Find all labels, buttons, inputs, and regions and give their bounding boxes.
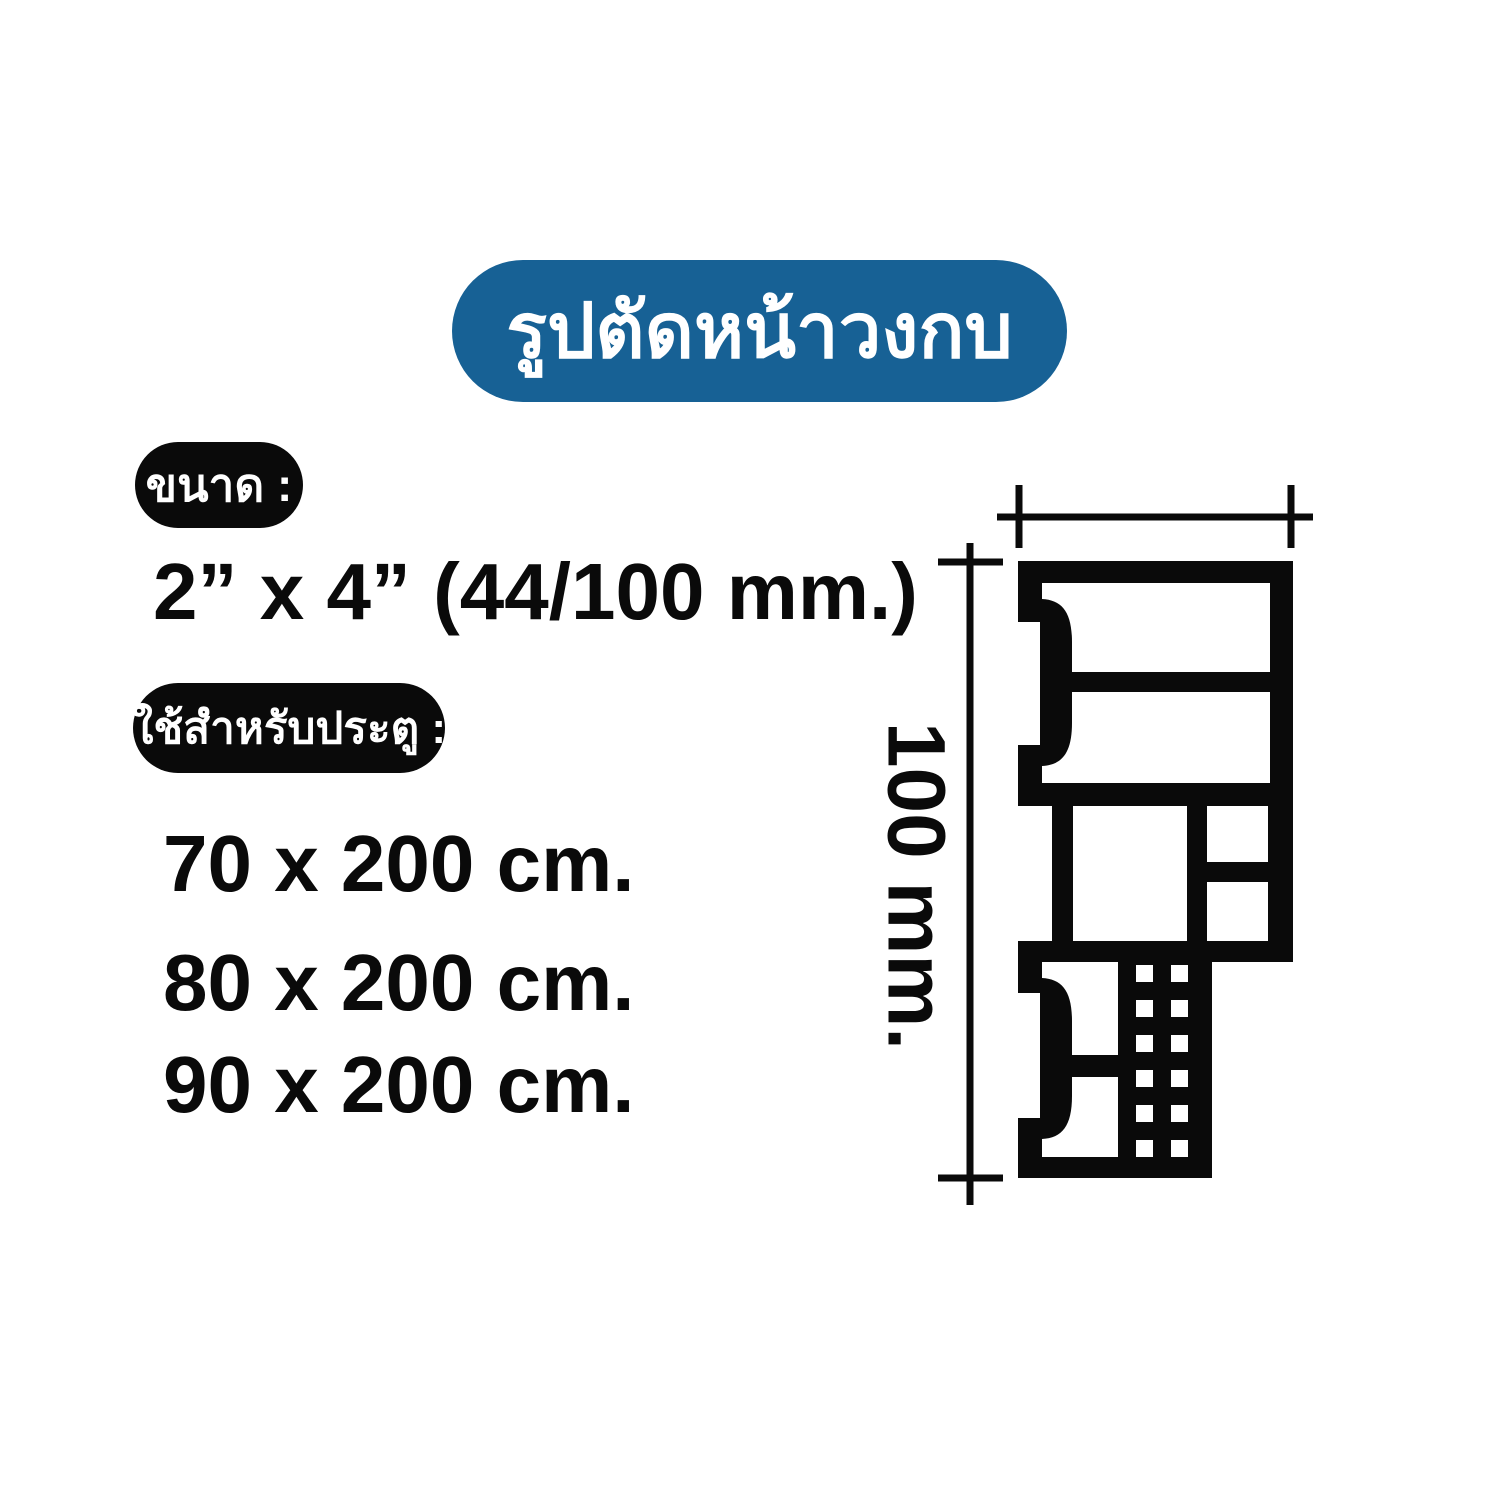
size-value: 2” x 4” (44/100 mm.) (153, 552, 918, 632)
hatch-square (1136, 1035, 1153, 1052)
infographic-canvas: รูปตัดหน้าวงกบ ขนาด : 2” x 4” (44/100 mm… (0, 0, 1500, 1500)
usage-label: ใช้สำหรับประตู : (132, 693, 446, 763)
door-size-item: 70 x 200 cm. (163, 824, 634, 904)
door-size-item: 90 x 200 cm. (163, 1045, 634, 1125)
door-size-item: 80 x 200 cm. (163, 943, 634, 1023)
profile-cavity-right-upper (1207, 806, 1268, 862)
hatch-square (1136, 1000, 1153, 1017)
size-label: ขนาด : (146, 449, 293, 522)
hatch-square (1136, 965, 1153, 982)
frame-cross-section-diagram: 100 mm. (860, 460, 1360, 1220)
hatch-square (1136, 1105, 1153, 1122)
profile-cavity-second (1042, 692, 1270, 783)
hatch-square (1171, 1035, 1188, 1052)
profile-cavity-middle-large (1073, 806, 1187, 941)
height-dimension-label: 100 mm. (871, 722, 962, 1050)
hatch-square (1171, 965, 1188, 982)
hatch-square (1171, 1070, 1188, 1087)
profile-cavity-top (1042, 583, 1270, 672)
hatch-square (1136, 1140, 1153, 1157)
profile-cavity-right-lower (1207, 882, 1268, 941)
size-label-badge: ขนาด : (135, 442, 303, 528)
hatch-square (1171, 1000, 1188, 1017)
hatch-square (1171, 1105, 1188, 1122)
usage-label-badge: ใช้สำหรับประตู : (133, 683, 445, 773)
hatch-square (1171, 1140, 1188, 1157)
title-banner: รูปตัดหน้าวงกบ (452, 260, 1067, 402)
hatch-square (1136, 1070, 1153, 1087)
page-title: รูปตัดหน้าวงกบ (506, 271, 1013, 391)
